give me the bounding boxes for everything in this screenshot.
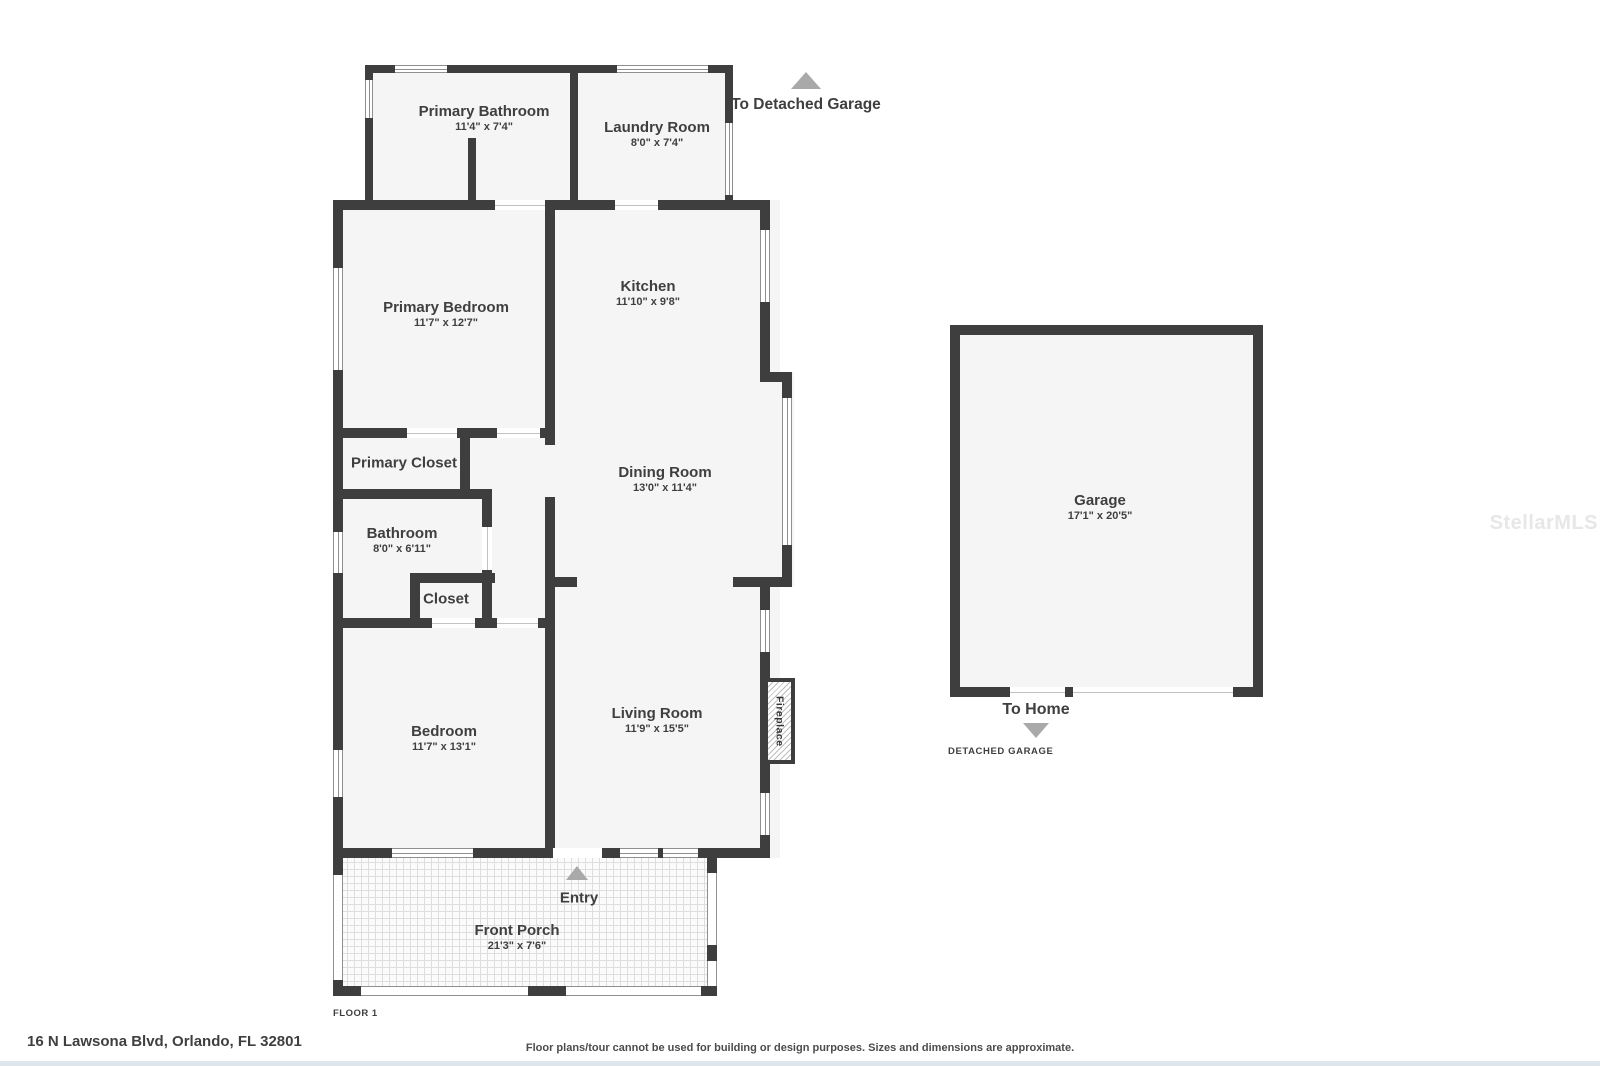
- window: [620, 848, 658, 858]
- wall: [410, 573, 495, 583]
- wall: [707, 986, 717, 996]
- wall: [528, 986, 566, 996]
- door-opening: [1073, 687, 1233, 697]
- entry-arrow-icon: [566, 866, 588, 880]
- wall: [333, 858, 343, 875]
- entry-opening: [553, 848, 602, 858]
- window: [333, 532, 343, 573]
- fireplace-label: Fireplace: [774, 696, 786, 747]
- room-dims: 11'10" x 9'8": [616, 295, 680, 310]
- door-opening: [495, 200, 545, 210]
- window: [395, 65, 447, 73]
- door-opening: [615, 200, 658, 210]
- room-dims: 11'4" x 7'4": [419, 120, 550, 135]
- porch-screen: [333, 875, 343, 980]
- porch-screen: [361, 986, 528, 996]
- door-opening: [432, 618, 475, 628]
- door-opening: [1010, 687, 1065, 697]
- window: [782, 398, 792, 545]
- room-dims: 11'9" x 15'5": [612, 722, 703, 737]
- wall: [570, 65, 578, 208]
- property-address: 16 N Lawsona Blvd, Orlando, FL 32801: [27, 1033, 302, 1050]
- room-name: Bathroom: [367, 525, 438, 542]
- room-dims: 11'7" x 13'1": [411, 740, 477, 755]
- wall: [545, 577, 577, 587]
- room-dims: 17'1" x 20'5": [1068, 509, 1133, 524]
- room-label-primary-bedroom: Primary Bedroom 11'7" x 12'7": [383, 299, 509, 331]
- room-name: Primary Closet: [351, 455, 457, 472]
- wall: [333, 489, 492, 499]
- wall: [545, 200, 555, 445]
- stellar-mls-watermark: StellarMLS: [1490, 512, 1598, 535]
- room-label-primary-bathroom: Primary Bathroom 11'4" x 7'4": [419, 103, 550, 135]
- room-label-primary-closet: Primary Closet: [351, 455, 457, 472]
- wall: [468, 138, 476, 208]
- porch-screen: [707, 873, 717, 945]
- door-opening: [482, 527, 492, 570]
- wall: [333, 986, 361, 996]
- wall: [950, 325, 960, 697]
- room-label-closet: Closet: [423, 591, 469, 608]
- room-label-dining-room: Dining Room 13'0" x 11'4": [618, 464, 711, 496]
- wall: [707, 945, 717, 961]
- window: [760, 230, 770, 302]
- room-name: Garage: [1068, 492, 1133, 509]
- footer-strip: [0, 1061, 1600, 1066]
- window: [333, 268, 343, 370]
- door-opening: [407, 428, 457, 438]
- room-label-living-room: Living Room 11'9" x 15'5": [612, 705, 703, 737]
- window: [617, 65, 708, 73]
- porch-screen: [707, 961, 717, 986]
- room-name: Laundry Room: [604, 119, 710, 136]
- wall: [733, 577, 792, 587]
- wall: [1253, 325, 1263, 697]
- room-name: Front Porch: [475, 922, 560, 939]
- door-opening: [497, 618, 538, 628]
- window: [725, 123, 733, 195]
- window: [365, 80, 373, 118]
- to-detached-garage-arrow-icon: [791, 72, 821, 89]
- room-label-bedroom: Bedroom 11'7" x 13'1": [411, 723, 477, 755]
- room-name: Closet: [423, 591, 469, 608]
- floor-level-label: FLOOR 1: [333, 1008, 378, 1019]
- detached-garage-label: DETACHED GARAGE: [948, 746, 1053, 757]
- room-name: Bedroom: [411, 723, 477, 740]
- window: [760, 610, 770, 652]
- room-label-kitchen: Kitchen 11'10" x 9'8": [616, 278, 680, 310]
- room-name: Primary Bedroom: [383, 299, 509, 316]
- wall: [707, 848, 717, 873]
- room-name: Dining Room: [618, 464, 711, 481]
- room-label-laundry-room: Laundry Room 8'0" x 7'4": [604, 119, 710, 151]
- floor-plan: Primary Bathroom 11'4" x 7'4" Laundry Ro…: [0, 0, 1600, 1066]
- wall: [545, 497, 555, 628]
- to-home-arrow-icon: [1023, 723, 1049, 738]
- room-label-front-porch: Front Porch 21'3" x 7'6": [475, 922, 560, 954]
- window: [333, 750, 343, 797]
- door-opening: [497, 428, 540, 438]
- to-detached-garage-label: To Detached Garage: [731, 96, 881, 114]
- room-name: Primary Bathroom: [419, 103, 550, 120]
- entry-label: Entry: [560, 890, 598, 907]
- disclaimer-text: Floor plans/tour cannot be used for buil…: [526, 1042, 1074, 1054]
- to-home-label: To Home: [1002, 701, 1069, 719]
- room-dims: 21'3" x 7'6": [475, 939, 560, 954]
- room-label-bathroom: Bathroom 8'0" x 6'11": [367, 525, 438, 557]
- room-dims: 8'0" x 7'4": [604, 136, 710, 151]
- wall: [545, 628, 555, 858]
- window: [663, 848, 698, 858]
- room-name: Living Room: [612, 705, 703, 722]
- room-dims: 11'7" x 12'7": [383, 316, 509, 331]
- window: [392, 848, 473, 858]
- room-dims: 13'0" x 11'4": [618, 481, 711, 496]
- room-name: Kitchen: [616, 278, 680, 295]
- porch-screen: [566, 986, 701, 996]
- room-label-garage: Garage 17'1" x 20'5": [1068, 492, 1133, 524]
- wall: [950, 325, 1263, 335]
- window: [760, 793, 770, 835]
- fireplace: Fireplace: [764, 678, 795, 764]
- room-dims: 8'0" x 6'11": [367, 542, 438, 557]
